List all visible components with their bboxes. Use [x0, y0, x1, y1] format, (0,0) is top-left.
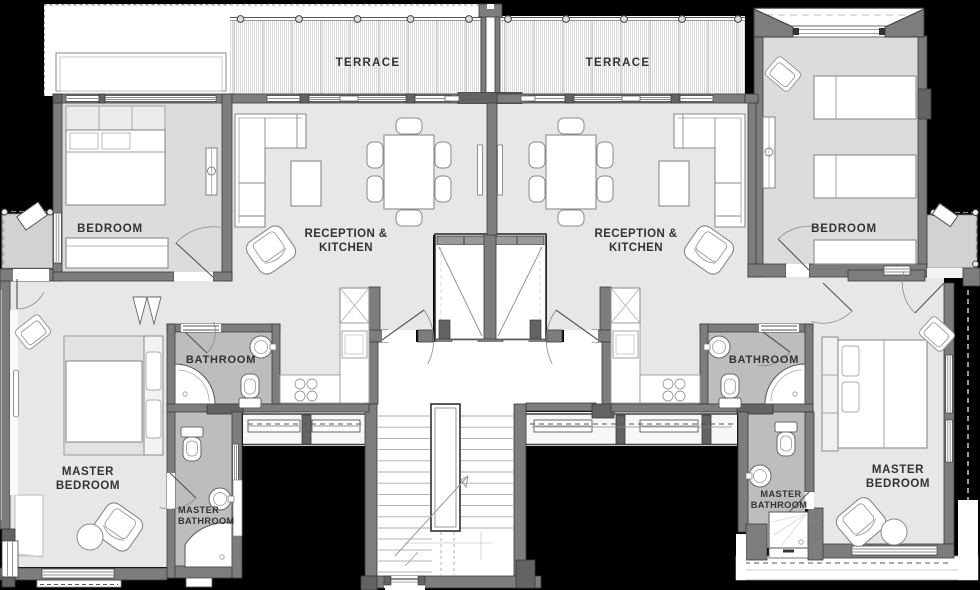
- svg-text:MASTER: MASTER: [760, 489, 801, 499]
- svg-text:BATHROOM: BATHROOM: [729, 354, 799, 366]
- svg-text:RECEPTION &: RECEPTION &: [305, 228, 388, 240]
- svg-text:TERRACE: TERRACE: [586, 57, 651, 69]
- svg-text:MASTER: MASTER: [178, 505, 219, 515]
- svg-text:BEDROOM: BEDROOM: [866, 478, 930, 490]
- svg-text:BATHROOM: BATHROOM: [751, 500, 808, 510]
- svg-text:MASTER: MASTER: [872, 464, 924, 476]
- svg-text:RECEPTION &: RECEPTION &: [595, 228, 678, 240]
- svg-text:TERRACE: TERRACE: [336, 57, 401, 69]
- svg-text:BATHROOM: BATHROOM: [178, 516, 235, 526]
- svg-text:BEDROOM: BEDROOM: [77, 223, 143, 235]
- svg-text:MASTER: MASTER: [62, 466, 114, 478]
- svg-text:BEDROOM: BEDROOM: [56, 480, 120, 492]
- svg-text:BATHROOM: BATHROOM: [186, 354, 256, 366]
- svg-text:KITCHEN: KITCHEN: [609, 242, 663, 254]
- svg-text:KITCHEN: KITCHEN: [319, 242, 373, 254]
- svg-text:BEDROOM: BEDROOM: [811, 223, 877, 235]
